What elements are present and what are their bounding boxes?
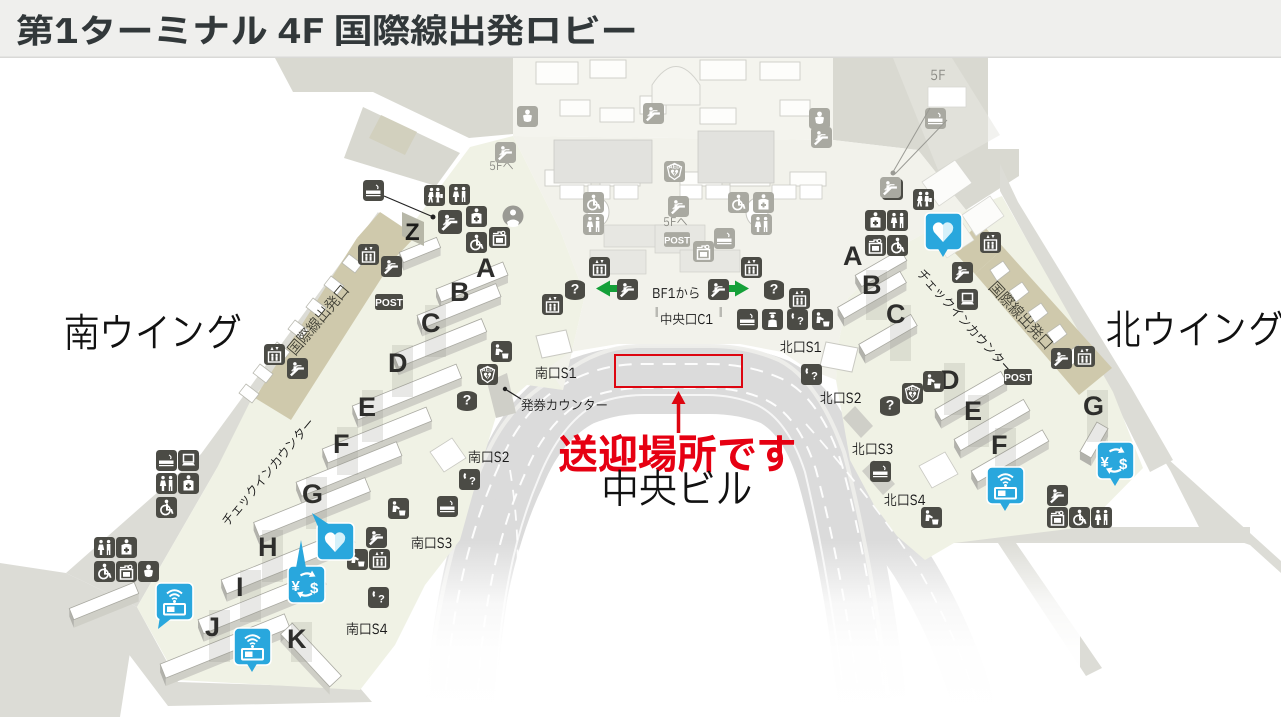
svg-text:F: F: [991, 430, 1008, 460]
svg-text:I: I: [236, 572, 244, 602]
svg-text:A: A: [476, 253, 496, 283]
svg-text:G: G: [302, 479, 323, 509]
svg-text:E: E: [358, 392, 376, 422]
svg-text:D: D: [388, 348, 408, 378]
svg-text:E: E: [964, 396, 982, 426]
svg-text:C: C: [886, 299, 906, 329]
svg-text:H: H: [258, 532, 278, 562]
svg-text:F: F: [333, 429, 350, 459]
svg-text:G: G: [1083, 391, 1104, 421]
svg-text:Z: Z: [405, 219, 420, 246]
svg-text:K: K: [287, 624, 307, 654]
svg-text:B: B: [450, 277, 470, 307]
svg-text:B: B: [862, 270, 882, 300]
svg-text:A: A: [843, 241, 863, 271]
svg-text:C: C: [421, 308, 441, 338]
svg-text:J: J: [205, 612, 220, 642]
